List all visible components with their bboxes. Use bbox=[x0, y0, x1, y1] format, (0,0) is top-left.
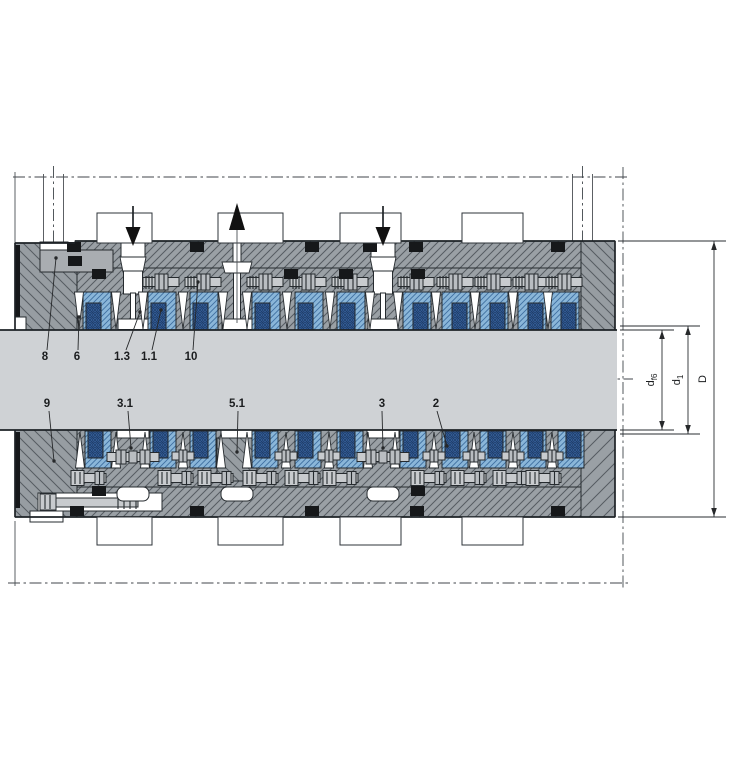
dimension-text: D bbox=[697, 375, 709, 383]
part-number-text: 1.3 bbox=[114, 351, 130, 363]
port-boss-bottom bbox=[462, 517, 523, 545]
packing-ring bbox=[340, 303, 355, 330]
leader-dot bbox=[52, 459, 55, 462]
port-boss-top bbox=[97, 213, 152, 243]
port-boss-bottom bbox=[218, 517, 283, 545]
packing-ring bbox=[86, 303, 101, 330]
center-block bbox=[129, 451, 137, 463]
screw-head bbox=[158, 471, 171, 486]
dimension-df6: df6 bbox=[620, 330, 674, 430]
oring-square bbox=[410, 506, 424, 516]
packing-ring bbox=[490, 303, 505, 330]
oring-square bbox=[339, 269, 353, 279]
dim-arrow bbox=[711, 508, 717, 517]
pocket bbox=[370, 257, 396, 272]
screw-head bbox=[493, 471, 506, 486]
oring-square bbox=[92, 486, 106, 496]
screw-head bbox=[243, 471, 256, 486]
screw-head bbox=[198, 471, 211, 486]
hex-nut bbox=[558, 274, 571, 290]
oring-square bbox=[411, 486, 425, 496]
oring-square bbox=[411, 269, 425, 279]
drain-slot bbox=[221, 487, 253, 501]
part-number-text: 5.1 bbox=[229, 398, 246, 410]
leader-dot bbox=[196, 280, 199, 283]
oring-square bbox=[70, 506, 84, 516]
hex-nut bbox=[259, 274, 272, 290]
hex-nut bbox=[525, 274, 538, 290]
shaft-body bbox=[0, 330, 617, 430]
part-number-text: 8 bbox=[42, 351, 49, 363]
part-number-text: 2 bbox=[433, 398, 439, 410]
part-number-text: 6 bbox=[74, 351, 80, 363]
leader-dot bbox=[77, 315, 80, 318]
oring-square bbox=[305, 506, 319, 516]
dim-arrow bbox=[685, 327, 691, 336]
part-number-text: 10 bbox=[185, 351, 198, 363]
leader-dot bbox=[159, 308, 162, 311]
leader-dot bbox=[445, 444, 448, 447]
packing-ring bbox=[561, 303, 576, 330]
slit bbox=[381, 293, 386, 322]
oring-square bbox=[190, 506, 204, 516]
port-boss-bottom bbox=[340, 517, 401, 545]
dimension-D: D bbox=[618, 241, 726, 517]
dim-arrow bbox=[685, 425, 691, 434]
dimension-text: d1 bbox=[671, 374, 685, 385]
dimension-lines: df6d1D bbox=[618, 241, 726, 517]
leader-dot bbox=[381, 446, 384, 449]
leader-dot bbox=[54, 256, 57, 259]
oring-square bbox=[551, 506, 565, 516]
oring-square bbox=[409, 242, 423, 252]
packing-ring bbox=[452, 303, 467, 330]
packing-ring bbox=[566, 431, 581, 458]
oring-square bbox=[284, 269, 298, 279]
packing-ring bbox=[488, 431, 503, 458]
dimension-d1: d1 bbox=[620, 326, 700, 434]
dim-arrow bbox=[659, 331, 665, 340]
oring-square bbox=[551, 242, 565, 252]
drain-slot bbox=[367, 487, 399, 501]
dimension-text: df6 bbox=[645, 373, 659, 386]
channel bbox=[374, 271, 393, 294]
end-block-bottom-right bbox=[581, 430, 615, 517]
plunger-shaft bbox=[0, 330, 617, 430]
part-number-text: 9 bbox=[44, 398, 50, 410]
bolt-head bbox=[40, 494, 56, 510]
dim-arrow bbox=[659, 421, 665, 430]
packing-ring bbox=[193, 431, 208, 458]
pocket bbox=[120, 257, 146, 272]
technical-drawing-canvas: 861.31.11093.15.132 df6d1D bbox=[0, 0, 731, 768]
packing-ring bbox=[88, 431, 103, 458]
oring-square bbox=[190, 242, 204, 252]
screw-head bbox=[411, 471, 424, 486]
packing-ring bbox=[298, 431, 313, 458]
screw-head bbox=[451, 471, 464, 486]
throttle-shoe bbox=[368, 319, 398, 330]
part-number-text: 1.1 bbox=[141, 351, 158, 363]
center-block bbox=[379, 451, 387, 463]
packing-ring bbox=[528, 303, 543, 330]
leader-dot bbox=[138, 310, 141, 313]
slit bbox=[131, 293, 136, 322]
packing-ring bbox=[340, 431, 355, 458]
dim-arrow bbox=[711, 242, 717, 251]
oring-square bbox=[68, 256, 82, 266]
leader-dot bbox=[129, 446, 132, 449]
port-boss-bottom bbox=[97, 517, 152, 545]
screw-head bbox=[323, 471, 336, 486]
packing-ring bbox=[151, 303, 166, 330]
packing-ring bbox=[255, 303, 270, 330]
part-number-text: 3 bbox=[379, 398, 385, 410]
hex-nut bbox=[487, 274, 500, 290]
notch bbox=[15, 317, 26, 330]
leader-dot bbox=[235, 450, 238, 453]
screw-head bbox=[285, 471, 298, 486]
oring-square bbox=[305, 242, 319, 252]
packing-ring bbox=[298, 303, 313, 330]
packing-ring bbox=[255, 431, 270, 458]
hex-nut bbox=[155, 274, 168, 290]
channel bbox=[124, 271, 143, 294]
screw-head bbox=[71, 471, 84, 486]
port-boss-top bbox=[218, 213, 283, 243]
oring-square bbox=[92, 269, 106, 279]
part-number-text: 3.1 bbox=[117, 398, 134, 410]
port-boss-top bbox=[462, 213, 523, 243]
hex-nut bbox=[449, 274, 462, 290]
drain-slot bbox=[117, 487, 149, 501]
port-boss-top bbox=[340, 213, 401, 243]
screw-head bbox=[526, 471, 539, 486]
end-block-top-right bbox=[581, 241, 615, 330]
seal-cross-section-drawing: 861.31.11093.15.132 df6d1D bbox=[0, 0, 731, 768]
hex-nut bbox=[302, 274, 315, 290]
packing-ring bbox=[413, 303, 428, 330]
